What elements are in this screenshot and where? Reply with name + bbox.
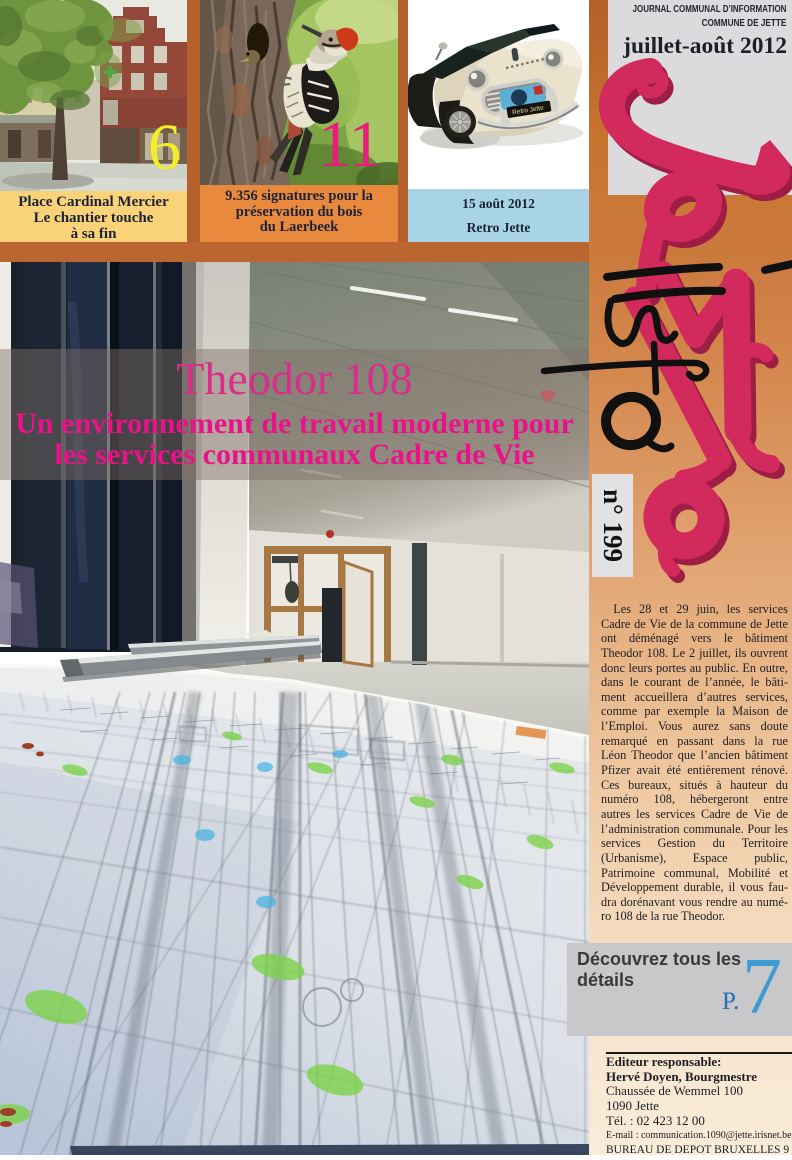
svg-text:6: 6 [148,111,181,184]
svg-text:11: 11 [318,108,382,181]
